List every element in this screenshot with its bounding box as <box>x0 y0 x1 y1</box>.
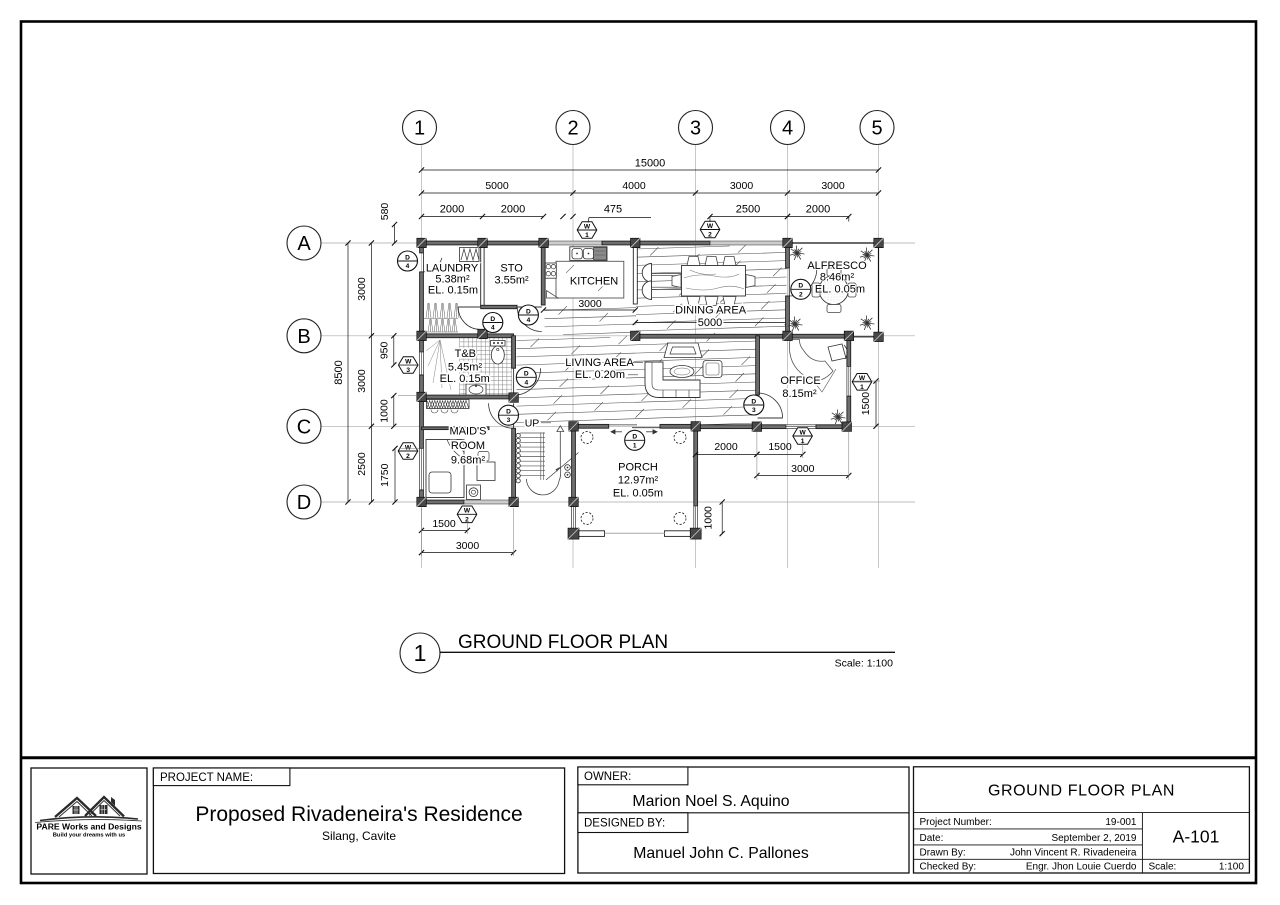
svg-text:475: 475 <box>604 204 622 216</box>
svg-text:D: D <box>297 492 311 514</box>
svg-text:4: 4 <box>491 325 495 332</box>
svg-text:2: 2 <box>406 453 410 460</box>
svg-text:W: W <box>707 223 714 230</box>
svg-text:4: 4 <box>406 263 410 270</box>
svg-text:D: D <box>506 409 511 416</box>
svg-text:3000: 3000 <box>456 540 480 552</box>
svg-text:DINING AREA: DINING AREA <box>675 305 747 317</box>
svg-text:W: W <box>799 429 806 436</box>
svg-text:1000: 1000 <box>379 399 391 423</box>
svg-text:GROUND FLOOR PLAN: GROUND FLOOR PLAN <box>988 783 1175 800</box>
svg-text:EL. 0.05m: EL. 0.05m <box>815 284 865 296</box>
svg-text:PROJECT NAME:: PROJECT NAME: <box>160 772 253 784</box>
svg-text:1: 1 <box>860 384 864 391</box>
svg-text:D: D <box>798 283 803 290</box>
svg-text:OWNER:: OWNER: <box>584 771 631 783</box>
svg-text:9.68m²: 9.68m² <box>451 455 486 467</box>
svg-text:3000: 3000 <box>730 180 754 192</box>
svg-text:GROUND FLOOR PLAN: GROUND FLOOR PLAN <box>458 632 668 653</box>
svg-text:ALFRESCO: ALFRESCO <box>807 260 867 272</box>
svg-text:1000: 1000 <box>703 506 715 530</box>
svg-text:8.46m²: 8.46m² <box>820 272 855 284</box>
svg-text:W: W <box>405 444 412 451</box>
svg-text:4: 4 <box>782 118 793 140</box>
svg-text:5.45m²: 5.45m² <box>448 362 483 374</box>
svg-text:W: W <box>405 358 412 365</box>
svg-text:3: 3 <box>507 417 511 424</box>
svg-text:5: 5 <box>871 118 882 140</box>
svg-text:STO: STO <box>500 263 523 275</box>
svg-text:5000: 5000 <box>485 180 509 192</box>
svg-text:1: 1 <box>414 640 427 666</box>
svg-text:3000: 3000 <box>791 463 815 475</box>
svg-text:DESIGNED BY:: DESIGNED BY: <box>584 818 665 830</box>
svg-text:1:100: 1:100 <box>1219 862 1244 873</box>
svg-text:A: A <box>297 233 311 255</box>
svg-text:15000: 15000 <box>635 158 666 170</box>
svg-text:4000: 4000 <box>622 180 646 192</box>
svg-text:2000: 2000 <box>440 204 464 216</box>
svg-text:1500: 1500 <box>768 441 792 453</box>
svg-text:B: B <box>297 326 310 348</box>
svg-text:D: D <box>405 254 410 261</box>
svg-text:Date:: Date: <box>920 833 944 844</box>
svg-text:2000: 2000 <box>714 441 738 453</box>
svg-text:EL. 0.05m: EL. 0.05m <box>613 488 663 500</box>
svg-text:1: 1 <box>633 442 637 449</box>
svg-text:2500: 2500 <box>356 452 368 476</box>
svg-text:EL. 0.15m: EL. 0.15m <box>428 285 478 297</box>
svg-text:2: 2 <box>799 291 803 298</box>
svg-text:Manuel John C. Pallones: Manuel John C. Pallones <box>633 845 809 862</box>
svg-text:D: D <box>751 398 756 405</box>
svg-text:4: 4 <box>524 379 528 386</box>
svg-text:W: W <box>584 223 591 230</box>
svg-text:UP: UP <box>525 417 540 429</box>
svg-text:8500: 8500 <box>333 360 345 384</box>
svg-text:8.15m²: 8.15m² <box>782 388 817 400</box>
svg-text:3000: 3000 <box>356 277 368 301</box>
svg-text:5000: 5000 <box>698 317 722 329</box>
svg-text:2500: 2500 <box>736 204 760 216</box>
svg-text:3000: 3000 <box>356 369 368 393</box>
svg-text:KITCHEN: KITCHEN <box>570 276 618 288</box>
svg-text:MAID'S: MAID'S <box>450 426 487 438</box>
svg-text:ROOM: ROOM <box>451 440 485 452</box>
svg-text:4: 4 <box>527 317 531 324</box>
svg-text:PARE Works and Designs: PARE Works and Designs <box>36 822 141 832</box>
svg-text:Marion Noel S. Aquino: Marion Noel S. Aquino <box>632 793 789 810</box>
svg-text:OFFICE: OFFICE <box>780 375 820 387</box>
svg-text:D: D <box>632 434 637 441</box>
svg-text:1500: 1500 <box>432 518 456 530</box>
svg-text:PORCH: PORCH <box>618 462 658 474</box>
svg-text:19-001: 19-001 <box>1105 817 1137 828</box>
svg-text:W: W <box>464 508 471 515</box>
svg-text:580: 580 <box>379 203 391 221</box>
svg-text:D: D <box>524 371 529 378</box>
svg-text:Project Number:: Project Number: <box>920 817 992 828</box>
svg-text:1500: 1500 <box>860 392 872 416</box>
svg-text:A-101: A-101 <box>1173 827 1220 847</box>
svg-text:Silang, Cavite: Silang, Cavite <box>322 829 396 843</box>
svg-text:1: 1 <box>585 232 589 239</box>
svg-text:Scale: 1:100: Scale: 1:100 <box>835 658 894 670</box>
svg-text:3: 3 <box>752 407 756 414</box>
svg-text:EL. 0.20m: EL. 0.20m <box>575 369 625 381</box>
svg-text:3: 3 <box>406 367 410 374</box>
svg-text:1750: 1750 <box>379 463 391 487</box>
svg-text:950: 950 <box>379 341 391 359</box>
svg-text:LIVING AREA: LIVING AREA <box>565 357 634 369</box>
svg-text:EL. 0.15m: EL. 0.15m <box>440 373 490 385</box>
svg-text:Engr. Jhon Louie Cuerdo: Engr. Jhon Louie Cuerdo <box>1026 862 1137 873</box>
svg-text:Checked By:: Checked By: <box>920 862 977 873</box>
svg-text:D: D <box>490 316 495 323</box>
svg-text:2000: 2000 <box>501 204 525 216</box>
svg-text:Proposed Rivadeneira's Residen: Proposed Rivadeneira's Residence <box>195 803 522 826</box>
svg-text:Drawn By:: Drawn By: <box>920 848 966 859</box>
svg-text:T&B: T&B <box>455 348 476 360</box>
svg-text:Build your dreams with us: Build your dreams with us <box>53 833 125 839</box>
svg-text:3000: 3000 <box>821 180 845 192</box>
svg-text:2: 2 <box>567 118 578 140</box>
svg-text:D: D <box>526 308 531 315</box>
svg-text:Scale:: Scale: <box>1149 862 1177 873</box>
svg-text:2000: 2000 <box>806 204 830 216</box>
svg-text:3.55m²: 3.55m² <box>494 275 529 287</box>
svg-text:John Vincent R. Rivadeneira: John Vincent R. Rivadeneira <box>1010 848 1137 859</box>
svg-text:September 2, 2019: September 2, 2019 <box>1051 833 1136 844</box>
svg-text:3: 3 <box>690 118 701 140</box>
svg-text:1: 1 <box>414 118 425 140</box>
svg-text:2: 2 <box>708 232 712 239</box>
svg-text:12.97m²: 12.97m² <box>618 475 659 487</box>
svg-text:3000: 3000 <box>578 298 602 310</box>
svg-text:C: C <box>297 416 311 438</box>
